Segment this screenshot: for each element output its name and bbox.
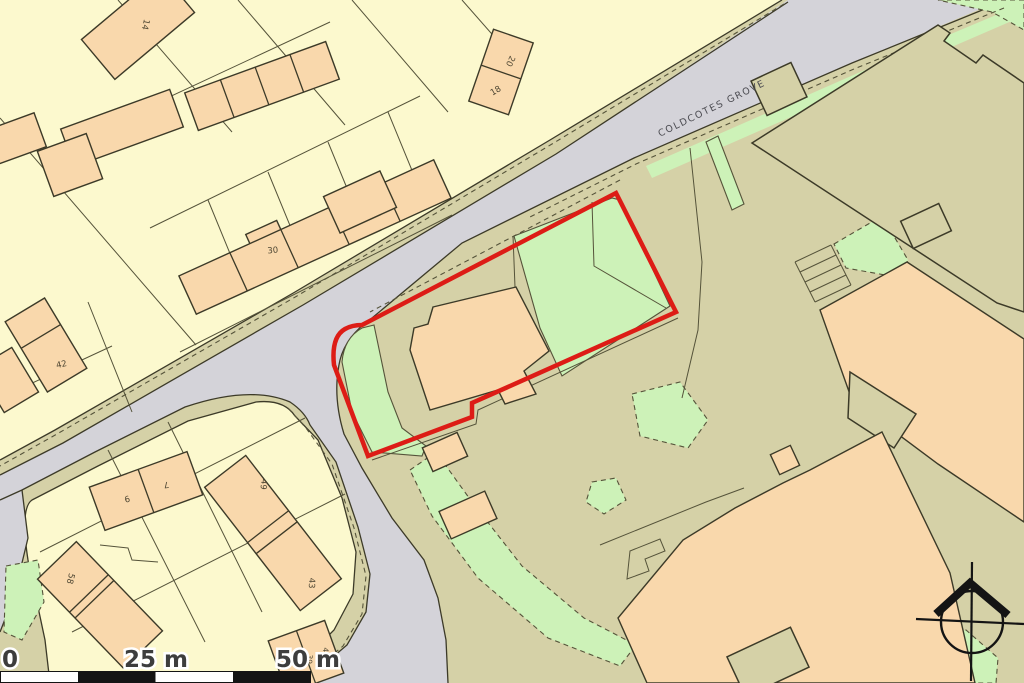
house-number-43: 43: [306, 577, 316, 588]
house-number-30: 30: [267, 246, 279, 257]
scale-label-0: 0: [2, 647, 18, 673]
site-plan-map: COLDCOTES GROVE 14 20 18 30 42 6 7 49 58…: [0, 0, 1024, 683]
house-number-49: 49: [257, 478, 268, 490]
scale-bar-segment-2: [233, 672, 311, 683]
scale-label-50m: 50 m: [276, 647, 340, 673]
scale-bar-segment-1: [78, 672, 156, 683]
scale-label-25m: 25 m: [124, 647, 188, 673]
site-plan-page: COLDCOTES GROVE 14 20 18 30 42 6 7 49 58…: [0, 0, 1024, 683]
